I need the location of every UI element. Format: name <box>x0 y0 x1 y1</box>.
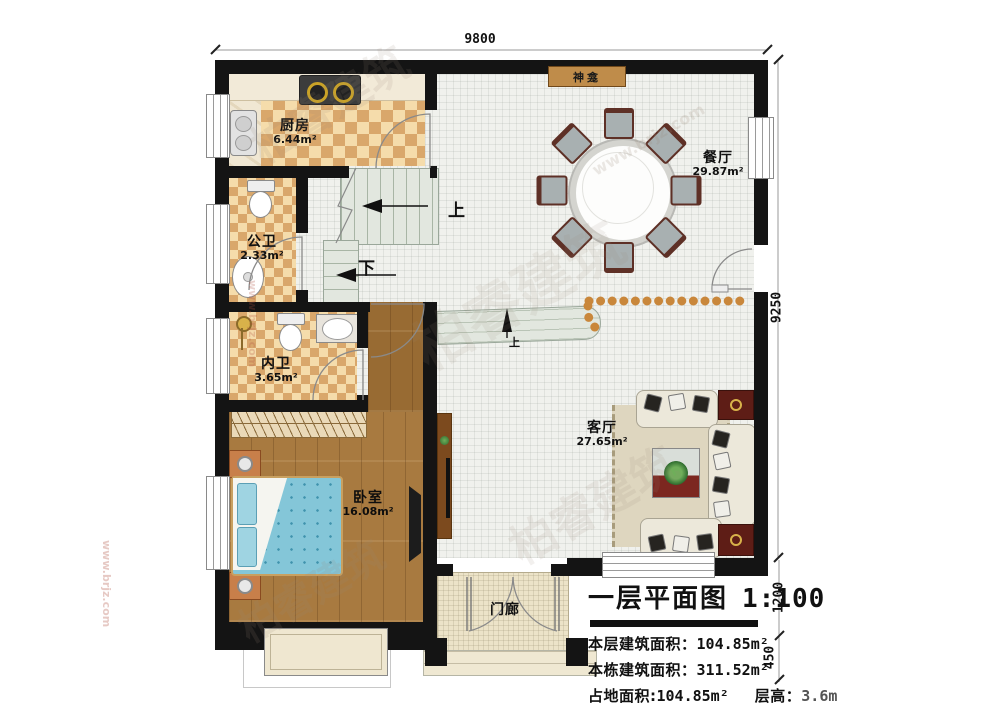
sofa-pillow <box>668 393 687 412</box>
shrine-label: 神龛 <box>573 69 601 85</box>
wall-kitchen-bottom <box>215 166 349 178</box>
stair-lower-flight <box>323 240 359 304</box>
area-line-2: 本栋建筑面积：311.52m² <box>588 659 988 680</box>
wall-publicbath-right <box>296 166 308 233</box>
toilet-bowl <box>249 191 272 218</box>
porch-pier-left <box>425 638 447 666</box>
sofa-top <box>636 390 718 428</box>
stair-down-label: 下 <box>358 254 375 279</box>
toilet-icon <box>247 180 273 218</box>
lamp-icon <box>237 578 253 594</box>
room-label-bedroom: 卧室 16.08m² <box>330 486 406 522</box>
sink-basin <box>235 116 252 132</box>
room-label-porch: 门廊 <box>477 600 533 620</box>
sink-basin <box>235 135 252 151</box>
nightstand <box>229 572 261 600</box>
tv-screen <box>446 458 450 518</box>
wardrobe-rail <box>232 423 366 424</box>
plan-title-row: 一层平面图1:100 <box>588 578 988 615</box>
bed-pillow <box>237 527 257 567</box>
lamp-icon <box>237 456 253 472</box>
sofa-pillow <box>713 500 731 518</box>
area-line-3: 占地面积:104.85m²层高：3.6m <box>588 685 988 706</box>
tv-cabinet <box>437 413 452 539</box>
kitchen-sink <box>230 110 257 156</box>
shower-head-icon <box>236 316 252 332</box>
room-label-kitchen: 厨房 6.44m² <box>257 114 333 150</box>
dim-top: 9800 <box>440 32 520 47</box>
gold-ornament-icon <box>730 399 742 411</box>
watermark-site-vertical: www.brjz.com <box>100 540 113 627</box>
title-block: 一层平面图1:100 本层建筑面积：104.85m² 本栋建筑面积：311.52… <box>588 578 988 706</box>
wall-right-lower <box>754 292 768 560</box>
toilet-bowl <box>279 324 302 351</box>
bedroom-tv <box>409 486 421 562</box>
dining-chair <box>604 242 634 273</box>
porch-jamb-right <box>551 564 567 576</box>
washbasin-icon <box>316 314 358 343</box>
sofa-pillow <box>711 429 730 448</box>
window-publicbath-left <box>206 204 230 284</box>
room-label-inner-bath: 内卫 3.65m² <box>240 352 312 388</box>
dim-right: 9250 <box>770 278 785 338</box>
sofa-pillow <box>643 393 662 412</box>
wall-living-bottom-right <box>713 558 768 576</box>
window-living-bottom <box>602 552 715 578</box>
coffee-table <box>652 448 700 498</box>
dining-chair <box>537 176 568 206</box>
table-inner-ring <box>582 152 654 224</box>
shower-hose <box>241 328 243 350</box>
room-label-living: 客厅 27.65m² <box>566 416 638 452</box>
wall-publicbath-right-stub <box>296 290 308 302</box>
basin-oval <box>322 318 353 340</box>
wall-kitchen-bottom-stub <box>430 166 437 178</box>
area-line-1: 本层建筑面积：104.85m² <box>588 633 988 654</box>
gold-ornament-icon <box>730 534 742 546</box>
dim-tick <box>774 55 783 64</box>
bedroom-corridor-floor <box>368 302 423 412</box>
plant-icon <box>440 436 449 445</box>
step-up-label: 上 <box>509 334 520 350</box>
plan-scale: 1:100 <box>742 584 825 614</box>
wardrobe <box>231 410 367 438</box>
sofa-pillow <box>648 534 667 553</box>
sofa-pillow <box>712 476 731 495</box>
porch-jamb-left <box>437 564 453 576</box>
wall-living-bottom-left <box>567 558 602 576</box>
window-innerbath-left <box>206 318 230 394</box>
stair-up-label: 上 <box>448 196 465 221</box>
wall-right-upper <box>754 60 768 117</box>
bay-window <box>264 628 388 676</box>
floor-plan-canvas: 神龛 厨房 6 <box>0 0 1000 706</box>
room-label-dining: 餐厅 29.87m² <box>680 146 756 182</box>
dim-tick <box>211 45 220 54</box>
wall-innerbath-right <box>357 302 368 348</box>
window-bedroom-left <box>206 476 230 570</box>
plan-title: 一层平面图 <box>588 584 728 614</box>
bay-window-inner-line <box>270 634 382 670</box>
room-label-public-bath: 公卫 2.33m² <box>228 230 296 266</box>
stove <box>299 75 361 105</box>
wall-bedroom-top <box>215 400 365 412</box>
floor-height-label: 层高： <box>755 687 802 705</box>
dim-tick <box>763 45 772 54</box>
toilet-icon <box>277 313 303 351</box>
corner-table <box>718 390 754 420</box>
sofa-right <box>708 424 756 526</box>
sofa-pillow <box>696 533 714 551</box>
floor-height-value: 3.6m <box>801 687 837 705</box>
stair-main-flight <box>340 168 439 245</box>
plant-icon <box>664 461 688 485</box>
burner-icon <box>307 82 328 103</box>
wall-right-mid <box>754 177 768 245</box>
sofa-pillow <box>692 395 711 414</box>
shrine-cabinet: 神龛 <box>548 66 626 87</box>
sofa-pillow <box>672 535 690 553</box>
burner-icon <box>333 82 354 103</box>
bed-pillow <box>237 483 257 525</box>
porch-pier-right <box>566 638 588 666</box>
corner-table <box>718 524 754 556</box>
nightstand <box>229 450 261 478</box>
wall-kitchen-right-stub <box>425 74 437 110</box>
sofa-pillow <box>713 452 732 471</box>
wall-bedroom-hall <box>423 302 437 622</box>
basin-drain <box>243 272 253 282</box>
bed <box>231 476 343 576</box>
title-underline <box>590 620 758 627</box>
dining-chair <box>604 108 634 139</box>
dim-tick <box>774 553 783 562</box>
wall-bath-divider <box>215 302 370 312</box>
window-kitchen-left <box>206 94 230 158</box>
wall-top <box>215 60 768 74</box>
